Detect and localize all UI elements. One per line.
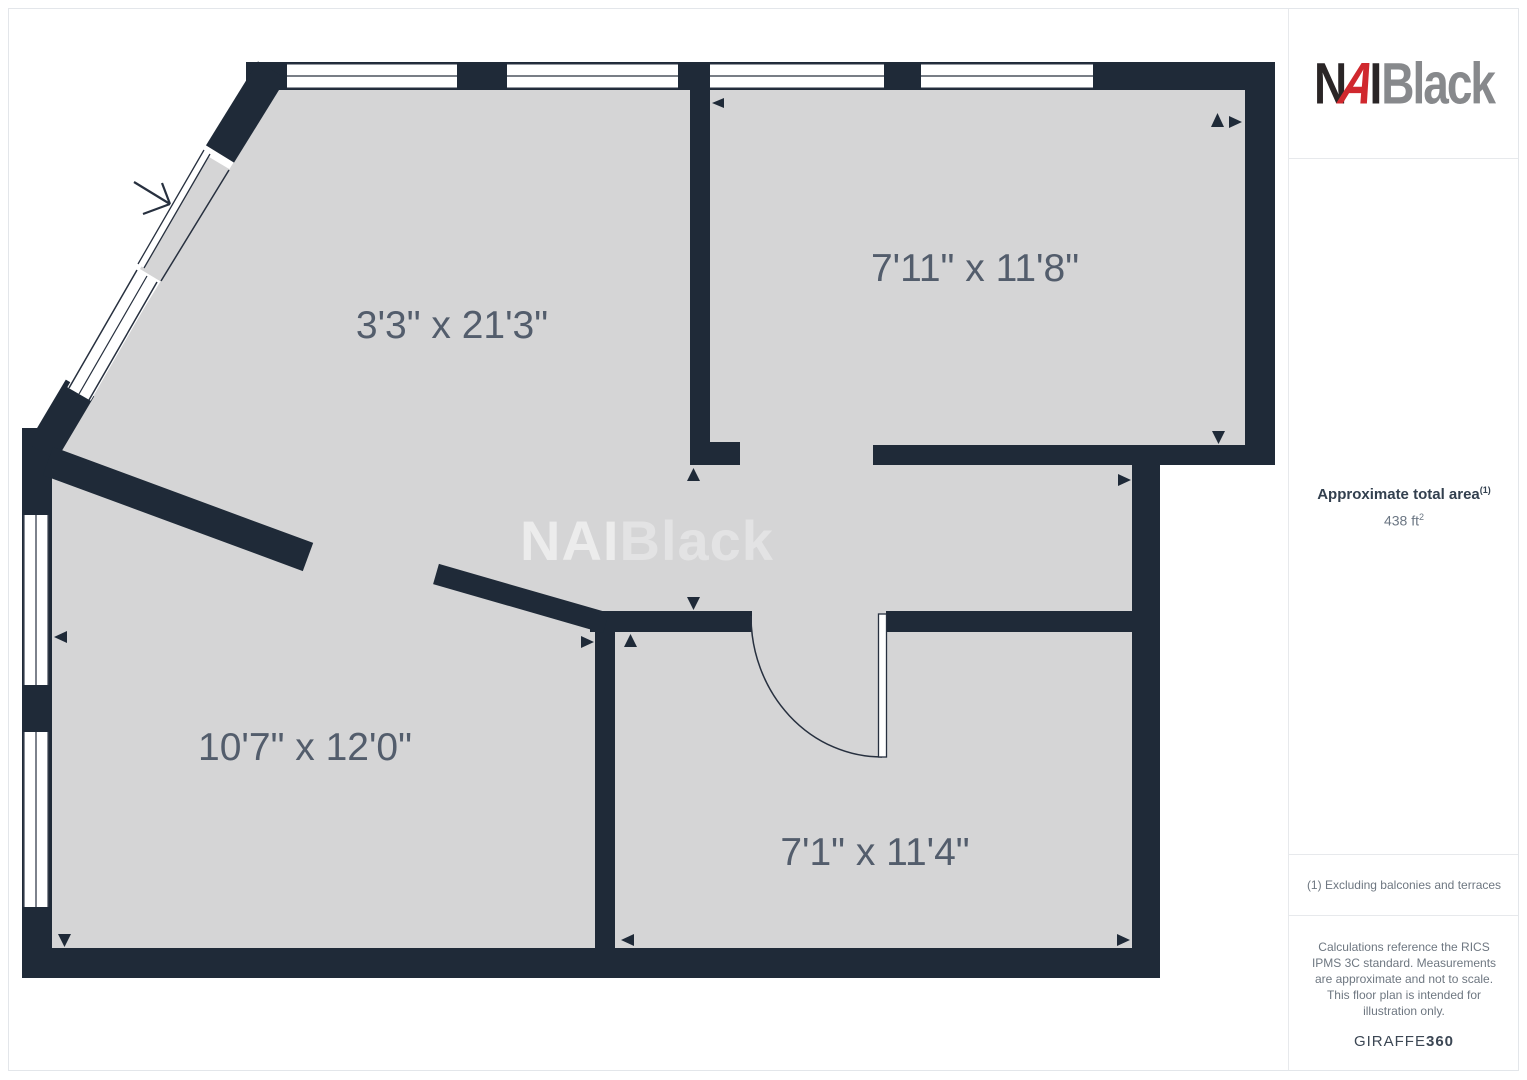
- wall-partition-top-rooms: [690, 62, 710, 443]
- window: [23, 732, 49, 907]
- room-label-top-right: 7'11" x 11'8": [871, 247, 1079, 290]
- wall-mid-band: [873, 445, 1275, 465]
- logo-suffix: Black: [1381, 50, 1494, 117]
- total-area-value: 438 ft2: [1384, 512, 1424, 529]
- total-area-title: Approximate total area(1): [1317, 485, 1491, 503]
- total-area-section: Approximate total area(1) 438 ft2: [1289, 159, 1519, 855]
- logo-section: NAIBlack: [1289, 8, 1519, 159]
- disclaimer-section: Calculations reference the RICS IPMS 3C …: [1289, 916, 1519, 1072]
- total-area-title-text: Approximate total area: [1317, 486, 1480, 503]
- room-label-bottom-left: 10'7" x 12'0": [198, 726, 412, 769]
- disclaimer-text: Calculations reference the RICS IPMS 3C …: [1306, 939, 1502, 1019]
- nai-black-logo: NAIBlack: [1314, 48, 1494, 117]
- window: [507, 63, 678, 89]
- window: [710, 63, 884, 89]
- wall-lower-vertical: [595, 611, 615, 948]
- door-leaf: [879, 614, 887, 757]
- window: [23, 515, 49, 685]
- info-sidebar: NAIBlack Approximate total area(1) 438 f…: [1288, 8, 1519, 1070]
- giraffe360-brand: GIRAFFE360: [1354, 1033, 1454, 1050]
- footnote-text: (1) Excluding balconies and terraces: [1307, 878, 1501, 892]
- wall-corridor-right: [886, 611, 1132, 632]
- window: [287, 63, 457, 89]
- footnote-section: (1) Excluding balconies and terraces: [1289, 855, 1519, 916]
- wall-partition-foot: [690, 442, 740, 465]
- wall-bottom: [22, 948, 1160, 978]
- brand-regular: GIRAFFE: [1354, 1033, 1426, 1050]
- wall-right-lower: [1132, 445, 1160, 978]
- room-label-bottom-middle: 7'1" x 11'4": [780, 831, 969, 874]
- watermark: NAIBlack: [520, 509, 774, 572]
- floorplan-canvas: NAIBlack 3'3" x 21'3" 7'11" x 11'8" 10'7…: [0, 0, 1288, 1080]
- wall-right-upper: [1245, 62, 1275, 465]
- total-area-value-superscript: 2: [1419, 512, 1424, 522]
- brand-bold: 360: [1426, 1033, 1454, 1050]
- room-label-hallway: 3'3" x 21'3": [356, 304, 548, 347]
- floorplan-svg: NAIBlack 3'3" x 21'3" 7'11" x 11'8" 10'7…: [0, 0, 1288, 1080]
- window: [921, 63, 1093, 89]
- total-area-value-text: 438 ft: [1384, 512, 1419, 528]
- total-area-title-superscript: (1): [1480, 485, 1491, 495]
- entrance-arrow-icon: [134, 182, 170, 214]
